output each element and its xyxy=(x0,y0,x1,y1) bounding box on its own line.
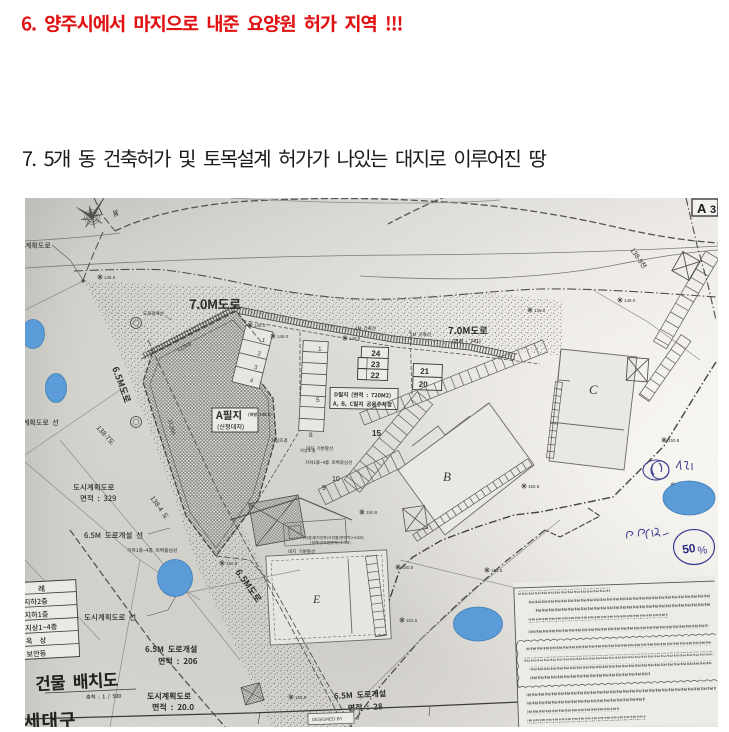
svg-text:9: 9 xyxy=(322,485,326,492)
svg-text:10: 10 xyxy=(332,476,340,483)
svg-text:C: C xyxy=(589,382,598,397)
svg-text:21: 21 xyxy=(420,367,430,376)
svg-text:148.0: 148.0 xyxy=(277,334,289,339)
svg-text:8: 8 xyxy=(309,432,313,439)
svg-text:%: % xyxy=(697,544,709,557)
svg-text:5: 5 xyxy=(316,397,320,404)
svg-text:3E: 3E xyxy=(111,209,118,217)
svg-text:151.5: 151.5 xyxy=(406,618,418,623)
svg-text:146.0: 146.0 xyxy=(534,308,546,313)
svg-text:150.8: 150.8 xyxy=(366,510,378,515)
svg-text:148.0: 148.0 xyxy=(349,336,361,341)
svg-text:150.8: 150.8 xyxy=(402,565,414,570)
svg-text:150.8: 150.8 xyxy=(668,438,680,443)
svg-text:23: 23 xyxy=(371,360,381,369)
svg-text:151.5: 151.5 xyxy=(491,568,503,573)
svg-text:1: 1 xyxy=(318,346,322,353)
svg-text:B: B xyxy=(443,469,451,484)
svg-text:22: 22 xyxy=(370,371,380,380)
svg-text:3: 3 xyxy=(710,204,716,216)
svg-text:15: 15 xyxy=(372,429,381,438)
svg-text:E: E xyxy=(312,592,321,606)
svg-text:148.0: 148.0 xyxy=(254,323,266,328)
svg-text:150.8: 150.8 xyxy=(226,561,238,566)
svg-text:50: 50 xyxy=(681,541,696,557)
svg-text:A: A xyxy=(697,201,707,216)
svg-text:24: 24 xyxy=(371,349,381,358)
svg-text:148.0: 148.0 xyxy=(624,298,636,303)
svg-text:150.8: 150.8 xyxy=(528,484,540,489)
svg-text:153.8: 153.8 xyxy=(295,695,307,700)
svg-text:146.6: 146.6 xyxy=(104,275,116,280)
